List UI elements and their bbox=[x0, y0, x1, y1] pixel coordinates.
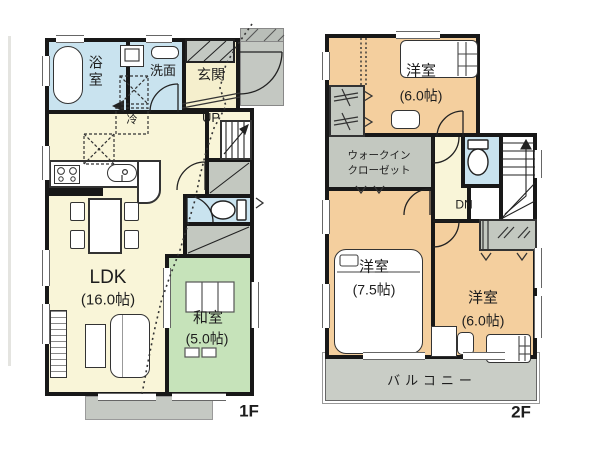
room-toilet-2f bbox=[461, 133, 503, 188]
washroom-label: 洗面 bbox=[150, 63, 176, 79]
floor-1f-label: 1F bbox=[239, 400, 259, 421]
chair-icon bbox=[70, 230, 85, 249]
wic-label-line2: クローゼット bbox=[348, 164, 411, 177]
stairs-down-label: DN bbox=[455, 198, 472, 213]
bedroom-right-size-label: (6.0帖) bbox=[462, 312, 505, 330]
window bbox=[42, 146, 50, 180]
nightstand-icon bbox=[391, 110, 420, 129]
ldk-label: LDK bbox=[90, 266, 127, 290]
window bbox=[98, 393, 156, 401]
window bbox=[463, 352, 505, 360]
wic-label-line1: ウォークイン bbox=[348, 149, 411, 162]
window bbox=[322, 284, 330, 328]
window bbox=[396, 31, 440, 39]
sliding-door bbox=[163, 268, 171, 328]
window bbox=[363, 352, 425, 360]
entrance-porch-canopy bbox=[240, 28, 284, 42]
window bbox=[251, 282, 259, 328]
window bbox=[172, 393, 226, 401]
kitchen-counter-front bbox=[45, 188, 103, 196]
ldk-size-label: (16.0帖) bbox=[81, 292, 135, 311]
floor-2f-label: 2F bbox=[511, 401, 531, 422]
bedroom-left-label: 洋室 bbox=[359, 259, 389, 278]
window bbox=[322, 200, 330, 234]
bath-label: 浴室 bbox=[86, 55, 104, 89]
left-margin-line bbox=[8, 36, 11, 366]
bathtub-icon bbox=[53, 46, 83, 104]
window bbox=[42, 56, 50, 86]
entrance-label: 玄関 bbox=[197, 66, 225, 84]
window bbox=[534, 248, 542, 288]
kitchen-counter-return bbox=[137, 160, 161, 204]
bedroom-right-label: 洋室 bbox=[468, 290, 498, 309]
window bbox=[534, 296, 542, 338]
window bbox=[42, 304, 50, 344]
floor-plan-canvas: 浴室 洗面 玄関 UP 冷 LDK (16.0帖) 和室 (5.0帖) 1F 洋… bbox=[0, 0, 600, 450]
window bbox=[534, 150, 542, 178]
stove-icon bbox=[54, 165, 80, 184]
stairs-2f-block bbox=[499, 133, 537, 223]
refrigerator-label: 冷 bbox=[127, 114, 138, 128]
chair-icon bbox=[124, 202, 139, 221]
washbasin-icon bbox=[151, 46, 179, 59]
closet-under-stairs bbox=[205, 158, 254, 198]
chair-icon bbox=[124, 230, 139, 249]
window bbox=[56, 35, 84, 43]
stairs-up-label: UP bbox=[202, 110, 220, 126]
window bbox=[42, 250, 50, 286]
sofa-icon bbox=[110, 314, 150, 378]
japanese-room-size-label: (5.0帖) bbox=[186, 330, 229, 348]
bedroom-top-label: 洋室 bbox=[406, 63, 436, 82]
chair-icon bbox=[70, 202, 85, 221]
stairs-1f-block bbox=[220, 120, 252, 160]
japanese-room-label: 和室 bbox=[193, 310, 223, 329]
closet-oshiire bbox=[183, 222, 254, 258]
washing-machine-icon bbox=[120, 45, 144, 67]
window bbox=[322, 52, 330, 80]
kitchen-sink-icon bbox=[107, 164, 137, 182]
desk-icon bbox=[431, 326, 457, 357]
tv-board-icon bbox=[50, 310, 67, 378]
window bbox=[146, 35, 172, 43]
closet-bedroom-top bbox=[329, 85, 365, 137]
bedroom-top-size-label: (6.0帖) bbox=[400, 87, 443, 105]
entrance-porch bbox=[240, 41, 284, 106]
bedroom-left-size-label: (7.5帖) bbox=[353, 281, 396, 299]
balcony-label: バルコニー bbox=[387, 373, 477, 389]
rug-icon bbox=[85, 324, 106, 368]
dining-table-icon bbox=[88, 198, 122, 254]
closet-bedroom-right bbox=[479, 219, 537, 251]
